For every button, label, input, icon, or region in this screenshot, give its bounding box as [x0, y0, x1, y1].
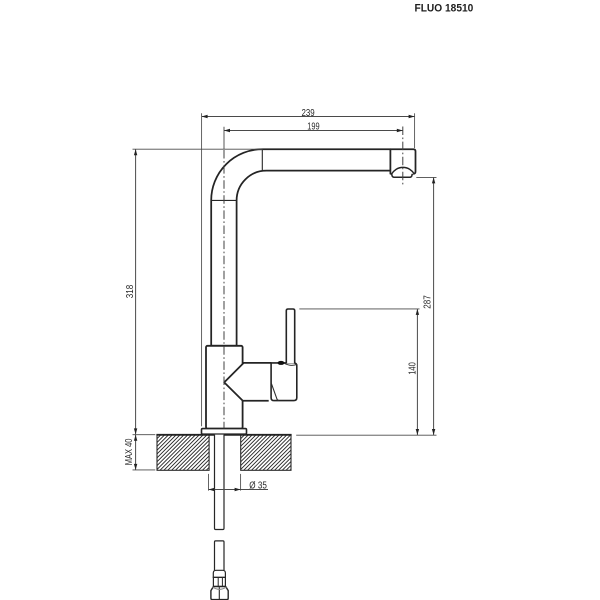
svg-text:140: 140	[408, 362, 419, 375]
svg-text:239: 239	[302, 108, 316, 119]
svg-text:318: 318	[125, 284, 136, 298]
svg-text:287: 287	[422, 295, 433, 309]
svg-text:199: 199	[307, 121, 320, 132]
svg-text:MAX 40: MAX 40	[124, 438, 135, 465]
svg-text:Ø 35: Ø 35	[249, 481, 267, 492]
svg-text:FLUO 18510: FLUO 18510	[415, 3, 474, 15]
